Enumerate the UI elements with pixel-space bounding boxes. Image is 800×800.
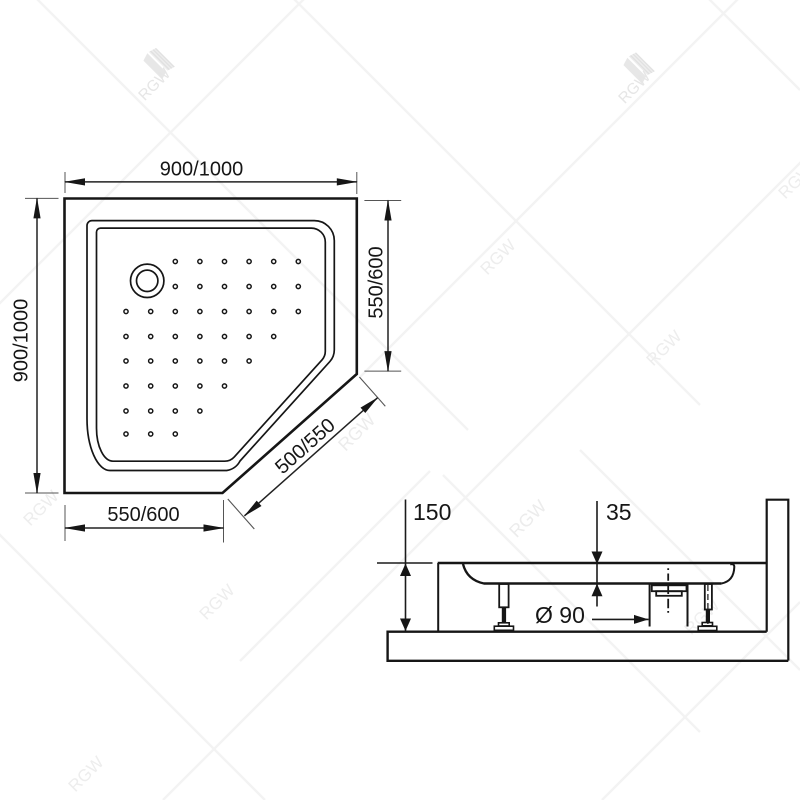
svg-text:900/1000: 900/1000 <box>11 299 33 382</box>
svg-text:RGW: RGW <box>505 496 550 541</box>
svg-text:RGW: RGW <box>643 327 686 370</box>
svg-text:Ø 90: Ø 90 <box>535 602 585 628</box>
svg-text:900/1000: 900/1000 <box>160 159 243 181</box>
svg-text:500/550: 500/550 <box>271 414 340 479</box>
svg-text:550/600: 550/600 <box>107 504 179 526</box>
svg-text:RGW: RGW <box>196 581 239 624</box>
svg-text:550/600: 550/600 <box>365 246 387 318</box>
svg-text:150: 150 <box>413 499 451 525</box>
svg-text:RGW: RGW <box>477 236 520 279</box>
svg-text:35: 35 <box>606 499 632 525</box>
svg-text:RGW: RGW <box>65 753 108 796</box>
